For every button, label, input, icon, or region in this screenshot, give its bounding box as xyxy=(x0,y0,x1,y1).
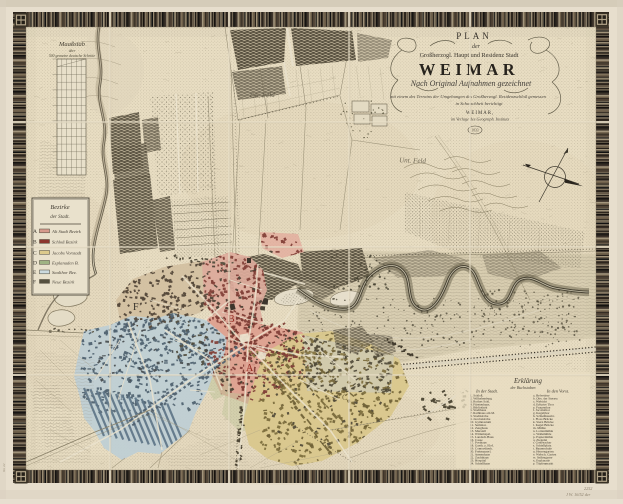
svg-text:1833: 1833 xyxy=(471,129,478,133)
svg-text:24. Schießhaus: 24. Schießhaus xyxy=(470,461,491,465)
svg-text:Maaßstab: Maaßstab xyxy=(58,41,86,48)
svg-text:Alt Stadt Bezirk: Alt Stadt Bezirk xyxy=(51,229,82,234)
svg-text:A: A xyxy=(246,363,254,374)
svg-text:F: F xyxy=(33,280,36,286)
svg-text:J W. 16/52 der: J W. 16/52 der xyxy=(566,492,591,497)
svg-text:Unt. Feld: Unt. Feld xyxy=(399,156,427,165)
svg-text:Esplanaden B.: Esplanaden B. xyxy=(51,260,79,265)
svg-text:WEIMAR: WEIMAR xyxy=(419,60,519,79)
svg-text:Großherzogl. Haupt und Residen: Großherzogl. Haupt und Residenz Stadt xyxy=(420,52,519,59)
svg-text:Erklärung: Erklärung xyxy=(513,378,543,385)
svg-text:Jacobs Vorstadt: Jacobs Vorstadt xyxy=(52,250,82,255)
svg-text:2252: 2252 xyxy=(584,486,592,491)
svg-text:B: B xyxy=(33,240,37,246)
svg-text:der Buchstaben: der Buchstaben xyxy=(511,385,536,390)
svg-text:PLAN: PLAN xyxy=(456,31,492,41)
svg-text:E: E xyxy=(120,393,125,402)
svg-text:C: C xyxy=(33,251,37,257)
svg-text:Saalthor Bez.: Saalthor Bez. xyxy=(52,270,77,275)
svg-text:A: A xyxy=(33,229,37,235)
svg-text:in Schwachheit berichtigt: in Schwachheit berichtigt xyxy=(456,101,504,106)
svg-text:F: F xyxy=(133,302,139,313)
svg-text:der: der xyxy=(472,44,481,50)
svg-text:Ob. Feld: Ob. Feld xyxy=(250,91,276,100)
svg-text:Neue Bezirk: Neue Bezirk xyxy=(51,279,75,284)
svg-text:Bezirke: Bezirke xyxy=(50,204,69,211)
svg-text:der Stadt.: der Stadt. xyxy=(50,215,69,220)
svg-text:Schloß Bezirk: Schloß Bezirk xyxy=(52,239,78,244)
svg-text:No 22: No 22 xyxy=(2,463,6,473)
svg-text:über: über xyxy=(69,49,76,53)
svg-text:500 gemeine deutsche Schritte: 500 gemeine deutsche Schritte xyxy=(49,54,96,58)
svg-text:im Verlage des Geograph. Insti: im Verlage des Geograph. Instituts xyxy=(451,117,510,122)
svg-text:C: C xyxy=(342,393,347,402)
svg-text:mit einem des Terrains der Umg: mit einem des Terrains der Umgebungen de… xyxy=(390,94,547,99)
svg-text:D: D xyxy=(33,261,37,267)
svg-text:y. Töpfenmarkt: y. Töpfenmarkt xyxy=(533,461,553,465)
